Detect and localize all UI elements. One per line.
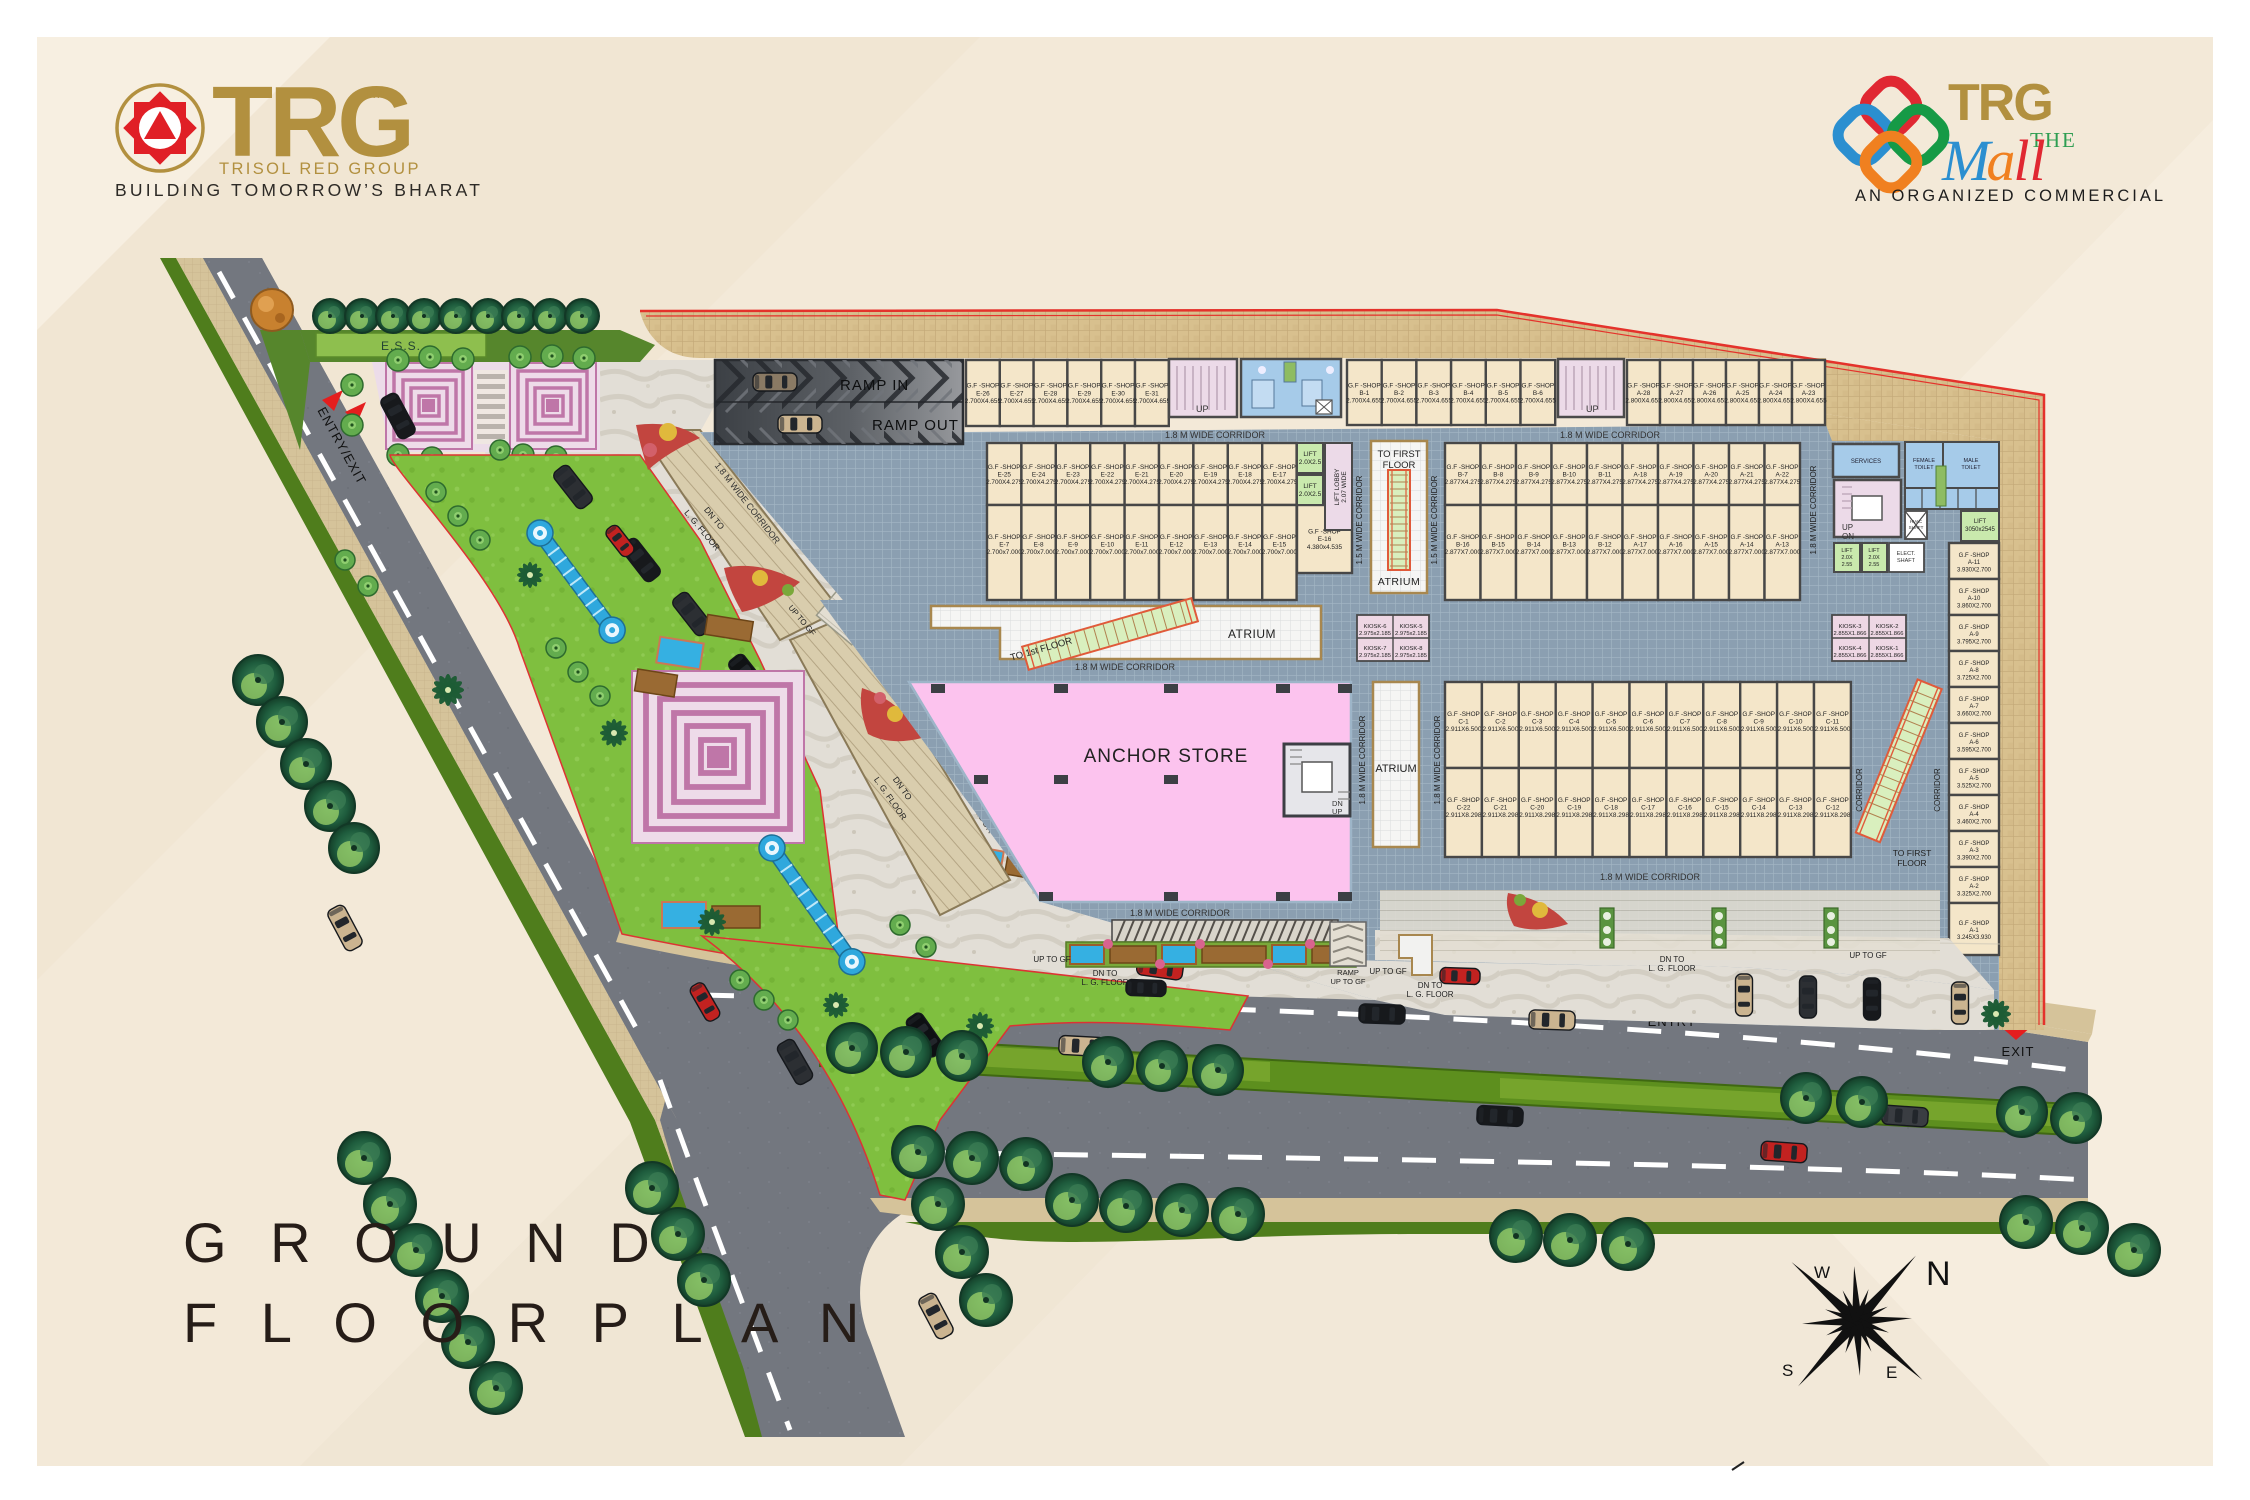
svg-text:L. G. FLOOR: L. G. FLOOR — [1648, 964, 1695, 973]
svg-text:KIOSK-3: KIOSK-3 — [1839, 624, 1862, 630]
svg-text:ELECT.: ELECT. — [1897, 551, 1916, 557]
svg-text:FEMALE: FEMALE — [1913, 458, 1935, 464]
svg-text:UP TO GF: UP TO GF — [1369, 967, 1406, 976]
svg-text:2.855X1.866: 2.855X1.866 — [1834, 653, 1867, 659]
svg-text:2.55: 2.55 — [1842, 562, 1853, 568]
svg-text:DN TO: DN TO — [1093, 969, 1118, 978]
svg-text:TO FIRST: TO FIRST — [1893, 848, 1932, 858]
svg-text:FLOOR: FLOOR — [1897, 858, 1926, 868]
svg-text:G R O U N D: G R O U N D — [183, 1211, 664, 1274]
svg-text:UP TO GF: UP TO GF — [1033, 955, 1070, 964]
svg-text:DN TO: DN TO — [1418, 981, 1443, 990]
svg-text:UP: UP — [1332, 807, 1342, 816]
svg-text:ATRIUM: ATRIUM — [1378, 576, 1420, 588]
svg-text:KIOSK-8: KIOSK-8 — [1400, 646, 1423, 652]
svg-text:ON: ON — [1842, 532, 1854, 541]
svg-text:2.07 WIDE: 2.07 WIDE — [1341, 471, 1348, 503]
svg-text:1.5 M WIDE CORRIDOR: 1.5 M WIDE CORRIDOR — [1355, 475, 1364, 564]
svg-text:2.0X2.5: 2.0X2.5 — [1299, 491, 1322, 498]
svg-text:CORRIDOR: CORRIDOR — [1933, 768, 1942, 812]
svg-text:2.855X1.866: 2.855X1.866 — [1871, 631, 1904, 637]
svg-text:1.8 M WIDE CORRIDOR: 1.8 M WIDE CORRIDOR — [1358, 715, 1367, 804]
svg-text:2.975x2.185: 2.975x2.185 — [1395, 653, 1427, 659]
svg-text:TO FIRST: TO FIRST — [1377, 449, 1420, 460]
svg-text:ANCHOR STORE: ANCHOR STORE — [1084, 746, 1249, 767]
svg-text:KIOSK-1: KIOSK-1 — [1876, 646, 1899, 652]
svg-text:N: N — [1926, 1255, 1951, 1293]
svg-text:L. G. FLOOR: L. G. FLOOR — [1081, 978, 1128, 987]
svg-text:LIFT: LIFT — [1303, 451, 1316, 458]
svg-text:KIOSK-2: KIOSK-2 — [1876, 624, 1899, 630]
svg-text:SERVICES: SERVICES — [1851, 459, 1881, 465]
svg-text:Mall: Mall — [1941, 128, 2046, 193]
svg-text:LIFT: LIFT — [1974, 519, 1987, 525]
svg-text:1.8 M WIDE CORRIDOR: 1.8 M WIDE CORRIDOR — [1809, 465, 1818, 554]
svg-text:KIOSK-6: KIOSK-6 — [1364, 624, 1387, 630]
svg-text:UP TO GF: UP TO GF — [1849, 951, 1886, 960]
svg-text:RAMP IN: RAMP IN — [840, 377, 909, 394]
svg-text:2.975x2.185: 2.975x2.185 — [1359, 631, 1391, 637]
svg-text:MALE: MALE — [1964, 458, 1979, 464]
svg-text:1.8 M WIDE CORRIDOR: 1.8 M WIDE CORRIDOR — [1130, 908, 1231, 918]
svg-text:E: E — [1886, 1363, 1897, 1382]
svg-text:KIOSK-5: KIOSK-5 — [1400, 624, 1423, 630]
svg-text:ATRIUM: ATRIUM — [1375, 763, 1416, 775]
svg-text:1.8 M WIDE CORRIDOR: 1.8 M WIDE CORRIDOR — [1165, 430, 1266, 440]
svg-text:RAMP OUT: RAMP OUT — [872, 417, 959, 434]
svg-text:UP: UP — [1842, 523, 1853, 532]
svg-text:2.855X1.866: 2.855X1.866 — [1834, 631, 1867, 637]
svg-text:KIOSK-4: KIOSK-4 — [1839, 646, 1863, 652]
svg-text:1.8 M WIDE CORRIDOR: 1.8 M WIDE CORRIDOR — [1075, 662, 1176, 672]
svg-text:L. G. FLOOR: L. G. FLOOR — [1406, 990, 1453, 999]
svg-text:UP: UP — [1196, 404, 1209, 414]
svg-text:CORRIDOR: CORRIDOR — [1855, 768, 1864, 812]
svg-text:UP TO GF: UP TO GF — [1330, 977, 1365, 986]
svg-text:S: S — [1782, 1361, 1793, 1380]
svg-text:AN ORGANIZED COMMERCIAL: AN ORGANIZED COMMERCIAL — [1855, 187, 2166, 205]
svg-text:TRG: TRG — [1948, 74, 2052, 132]
svg-text:1.8 M WIDE CORRIDOR: 1.8 M WIDE CORRIDOR — [1433, 715, 1442, 804]
svg-text:SHAFT: SHAFT — [1897, 558, 1916, 564]
svg-text:1.8 M WIDE CORRIDOR: 1.8 M WIDE CORRIDOR — [1600, 872, 1701, 882]
svg-text:2.0X: 2.0X — [1841, 555, 1853, 561]
svg-text:KIOSK-7: KIOSK-7 — [1364, 646, 1387, 652]
svg-text:2.855X1.866: 2.855X1.866 — [1871, 653, 1904, 659]
svg-text:RAMP: RAMP — [1337, 968, 1359, 977]
svg-text:UP: UP — [1586, 404, 1599, 414]
svg-text:F L O O R P L A N: F L O O R P L A N — [183, 1291, 873, 1354]
svg-text:DN TO: DN TO — [1660, 955, 1685, 964]
svg-text:EXIT: EXIT — [2002, 1044, 2035, 1059]
svg-text:2.0X2.5: 2.0X2.5 — [1299, 459, 1322, 466]
svg-text:BUILDING TOMORROW’S BHARAT: BUILDING TOMORROW’S BHARAT — [115, 180, 483, 200]
svg-text:LIFT: LIFT — [1841, 548, 1853, 554]
svg-text:2.975x2.185: 2.975x2.185 — [1395, 631, 1427, 637]
svg-text:2.55: 2.55 — [1869, 562, 1880, 568]
svg-text:TM: TM — [364, 85, 384, 101]
svg-text:LIFT LOBBY: LIFT LOBBY — [1334, 468, 1341, 505]
svg-text:SHAFT: SHAFT — [1909, 525, 1924, 530]
svg-text:1.8 M WIDE CORRIDOR: 1.8 M WIDE CORRIDOR — [1560, 430, 1661, 440]
svg-text:3050x2545: 3050x2545 — [1965, 527, 1995, 533]
svg-text:2.975x2.185: 2.975x2.185 — [1359, 653, 1391, 659]
svg-text:TOILET: TOILET — [1914, 465, 1934, 471]
svg-text:TOILET: TOILET — [1961, 465, 1981, 471]
svg-text:W: W — [1814, 1263, 1830, 1282]
svg-text:ATRIUM: ATRIUM — [1228, 627, 1276, 641]
svg-text:2.0X: 2.0X — [1868, 555, 1880, 561]
svg-text:1.5 M WIDE CORRIDOR: 1.5 M WIDE CORRIDOR — [1430, 475, 1439, 564]
svg-text:HVAC: HVAC — [1910, 519, 1923, 524]
svg-text:TRISOL RED GROUP: TRISOL RED GROUP — [219, 160, 421, 178]
svg-text:LIFT: LIFT — [1868, 548, 1880, 554]
svg-text:LIFT: LIFT — [1303, 483, 1316, 490]
